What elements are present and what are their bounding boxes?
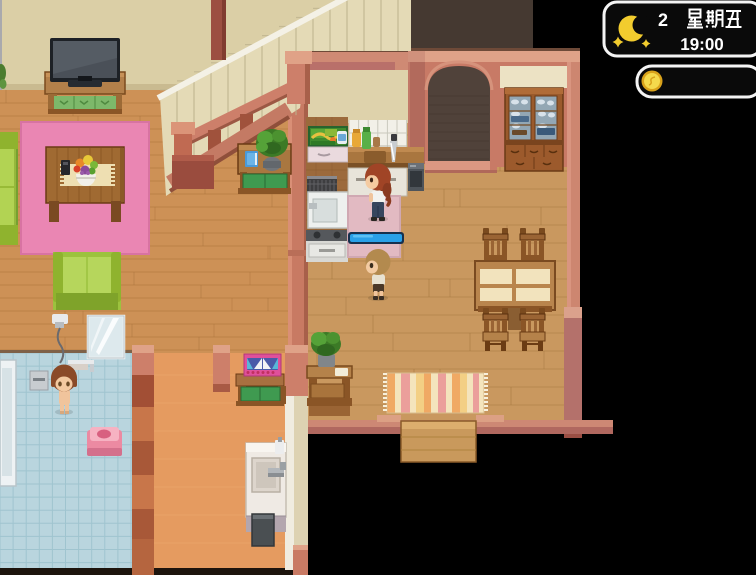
svg-text:19:00: 19:00 [680,35,723,54]
svg-text:2: 2 [658,10,668,30]
